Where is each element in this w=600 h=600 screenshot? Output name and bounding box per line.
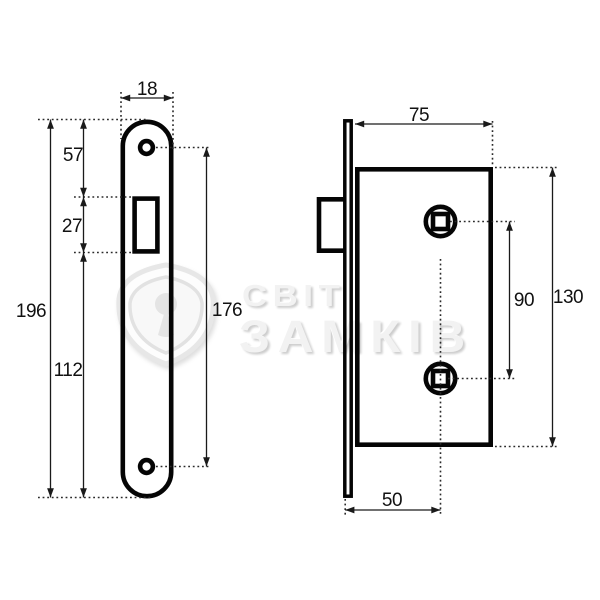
lock-body-side-view bbox=[319, 121, 491, 496]
technical-drawing: 18 196 57 27 112 176 75 90 130 50 bbox=[0, 0, 600, 600]
latch-cutout bbox=[135, 199, 158, 252]
label-faceplate-length: 196 bbox=[16, 301, 46, 322]
faceplate-front-view bbox=[123, 122, 171, 496]
screw-hole-top bbox=[140, 141, 153, 154]
label-faceplate-width: 18 bbox=[137, 79, 157, 100]
lock-dimension-diagram: СВІТ ЗАМКІВ bbox=[0, 0, 600, 600]
label-latch-height: 27 bbox=[62, 216, 82, 237]
screw-hole-bottom bbox=[140, 460, 153, 473]
label-top-to-latch: 57 bbox=[63, 145, 83, 166]
label-screw-spacing: 176 bbox=[212, 300, 242, 321]
spindle-square-top bbox=[433, 214, 448, 229]
latch-bolt bbox=[319, 199, 346, 250]
label-body-depth: 75 bbox=[409, 105, 429, 126]
lock-body-outline bbox=[357, 169, 490, 444]
label-body-height: 130 bbox=[553, 287, 583, 308]
extension-lines bbox=[38, 92, 558, 516]
label-backset: 50 bbox=[382, 490, 402, 511]
label-spindle-spacing: 90 bbox=[514, 290, 534, 311]
label-latch-to-bottom: 112 bbox=[54, 360, 83, 381]
dimension-labels: 18 196 57 27 112 176 75 90 130 50 bbox=[16, 79, 583, 511]
faceplate-outline bbox=[123, 122, 171, 496]
faceplate-edge bbox=[345, 121, 351, 496]
dimension-lines bbox=[51, 98, 553, 510]
